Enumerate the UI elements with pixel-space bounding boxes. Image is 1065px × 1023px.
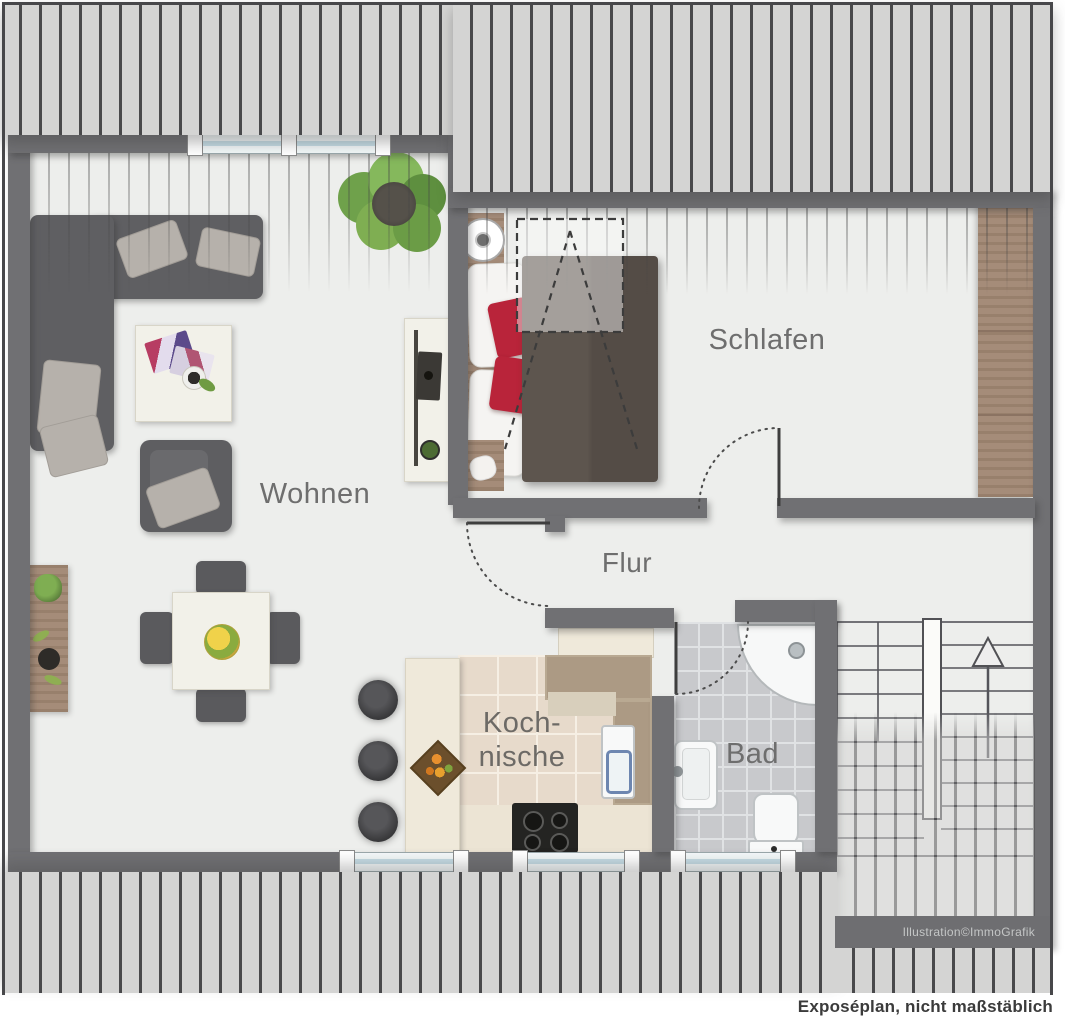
roof-slope-lines-bedroom [468,208,1033,294]
bar-stool [358,802,398,842]
wall-bedroom-flur-right [777,498,1035,518]
window-post [375,132,391,156]
room-label-wohnen: Wohnen [240,478,390,511]
dining-chair [196,688,246,722]
wall-right [1033,208,1053,947]
window-post [339,850,355,874]
room-label-flur: Flur [577,547,677,579]
bar-stool [358,741,398,781]
shower-head [788,642,805,659]
roof-hatch-top-right [453,2,1053,192]
window-post [281,132,297,156]
plan-caption: Exposéplan, nicht maßstäblich [798,997,1053,1017]
burner [524,834,541,851]
room-label-bad: Bad [705,738,800,771]
window-post [624,850,640,874]
sink-basin [606,750,632,794]
dining-chair [196,561,246,595]
stove [512,803,578,853]
window-post [670,850,686,874]
roof-hatch-bottom [2,872,837,993]
burner [551,812,568,829]
wall-door-post [545,516,565,532]
room-label-kochnische: Koch- nische [462,706,582,774]
room-label-schlafen: Schlafen [687,324,847,357]
bar-stool [358,680,398,720]
watermark: Illustration©ImmoGrafik [903,925,1035,939]
window-post [780,850,796,874]
wall-bath-right [815,600,837,852]
wall-kitchen-bath [652,696,674,852]
dining-chair [266,612,300,664]
sideboard-plant [420,440,440,460]
toilet-bowl [753,793,799,847]
window-bottom-2 [518,852,634,872]
planter-pot [38,648,60,670]
flur-cupboard [558,628,654,658]
kochnische-line1: Koch- [462,706,582,740]
window-post [512,850,528,874]
roof-hatch-top-left [2,2,453,135]
floorplan-canvas: Illustration©ImmoGrafik Wohnen Schlafen … [0,0,1065,1023]
roof-slope-lines-living [30,140,448,292]
window-bottom-1 [345,852,463,872]
wall-flur-kitchen [545,608,674,628]
window-post [453,850,469,874]
wall-bedroom-flur-left [453,498,707,518]
roof-hatch-bottom-right [835,948,1053,993]
wall-left [8,133,30,872]
roof-hatch-over-stairs [837,712,1035,918]
window-bottom-3 [676,852,790,872]
stair-bottom-wall: Illustration©ImmoGrafik [835,916,1053,948]
tv-detail [424,371,433,380]
dining-chair [140,612,174,664]
planter-plant [34,574,62,602]
burner [523,811,544,832]
kochnische-line2: nische [462,740,582,774]
window-post [187,132,203,156]
burner [550,833,569,852]
fruit-bowl [204,624,240,660]
